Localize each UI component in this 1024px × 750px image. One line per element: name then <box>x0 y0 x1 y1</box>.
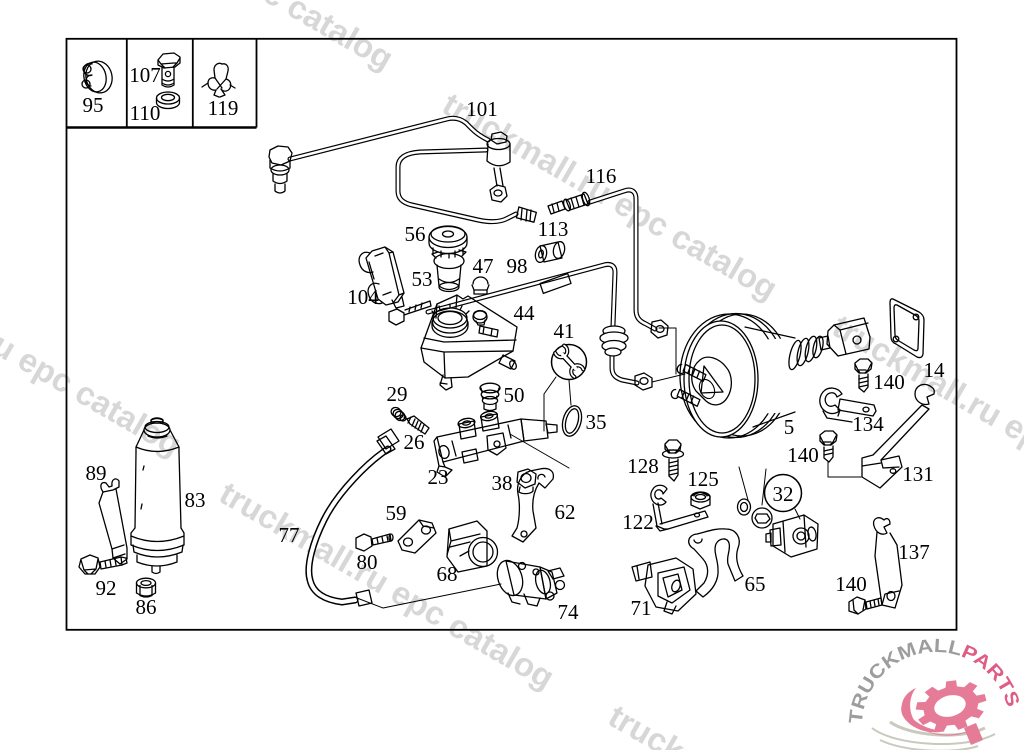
svg-text:41: 41 <box>554 319 575 343</box>
svg-text:107: 107 <box>129 63 161 87</box>
svg-text:101: 101 <box>466 97 498 121</box>
svg-text:14: 14 <box>924 358 946 382</box>
svg-text:47: 47 <box>473 254 494 278</box>
svg-text:110: 110 <box>130 101 161 125</box>
svg-text:65: 65 <box>745 572 766 596</box>
svg-text:29: 29 <box>387 382 408 406</box>
svg-text:104: 104 <box>347 285 379 309</box>
svg-text:119: 119 <box>208 96 239 120</box>
svg-text:140: 140 <box>835 572 867 596</box>
svg-text:83: 83 <box>185 488 206 512</box>
svg-text:32: 32 <box>773 482 794 506</box>
svg-text:98: 98 <box>507 254 528 278</box>
svg-text:140: 140 <box>787 443 819 467</box>
svg-text:71: 71 <box>631 596 652 620</box>
svg-text:50: 50 <box>504 383 525 407</box>
svg-text:116: 116 <box>586 164 617 188</box>
svg-text:56: 56 <box>405 222 426 246</box>
svg-text:44: 44 <box>514 301 536 325</box>
svg-text:59: 59 <box>386 501 407 525</box>
svg-text:92: 92 <box>96 576 117 600</box>
svg-text:5: 5 <box>784 415 795 439</box>
svg-text:122: 122 <box>622 510 654 534</box>
svg-text:113: 113 <box>538 217 569 241</box>
svg-text:137: 137 <box>898 540 930 564</box>
svg-text:77: 77 <box>279 523 300 547</box>
svg-text:140: 140 <box>873 370 905 394</box>
svg-text:26: 26 <box>404 430 425 454</box>
svg-text:53: 53 <box>412 267 433 291</box>
svg-text:128: 128 <box>627 454 659 478</box>
svg-text:89: 89 <box>86 461 107 485</box>
svg-text:38: 38 <box>492 471 513 495</box>
svg-text:131: 131 <box>902 462 934 486</box>
svg-text:68: 68 <box>437 562 458 586</box>
svg-text:134: 134 <box>852 412 884 436</box>
svg-text:62: 62 <box>555 500 576 524</box>
svg-text:74: 74 <box>558 600 580 624</box>
svg-text:23: 23 <box>428 465 449 489</box>
svg-text:80: 80 <box>357 550 378 574</box>
svg-text:95: 95 <box>83 93 104 117</box>
svg-text:86: 86 <box>136 595 157 619</box>
svg-text:35: 35 <box>586 410 607 434</box>
svg-text:125: 125 <box>687 467 719 491</box>
